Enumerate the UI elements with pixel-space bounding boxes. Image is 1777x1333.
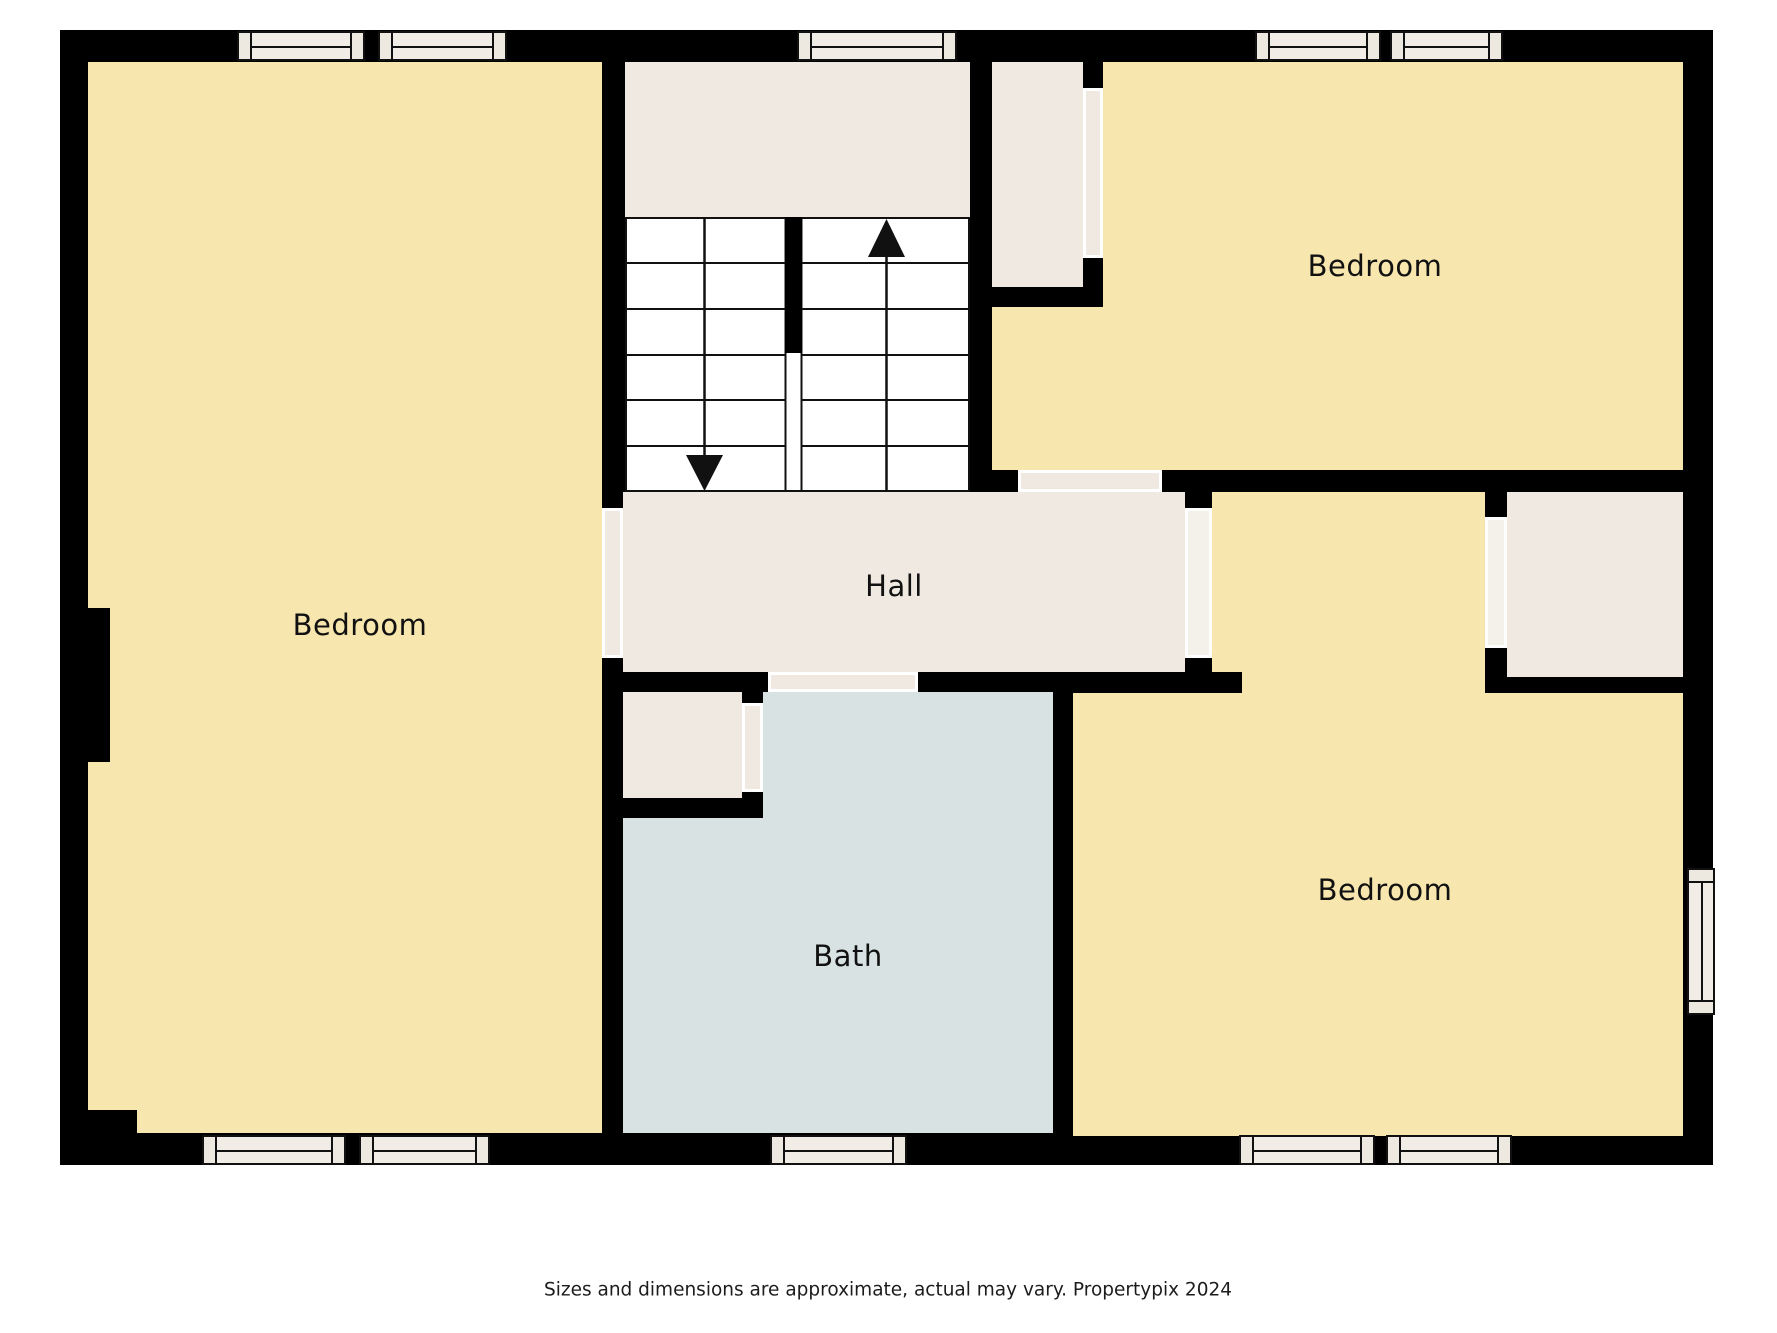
- window: [797, 31, 957, 61]
- caption: Sizes and dimensions are approximate, ac…: [544, 1280, 1232, 1301]
- window: [1687, 868, 1715, 1015]
- room-label-bath: Bath: [813, 939, 882, 973]
- window: [770, 1135, 907, 1165]
- bedroom-left-floor: [88, 62, 602, 1133]
- door-opening-closet-top: [1083, 88, 1103, 258]
- door-opening-bedroom-bottom-right: [1185, 508, 1212, 658]
- closet-top-floor: [992, 62, 1083, 287]
- floorplan-canvas: Bedroom Bedroom Bedroom Hall Bath Sizes …: [0, 0, 1777, 1333]
- room-label-bedroom-bottom-right: Bedroom: [1318, 873, 1453, 907]
- window: [1386, 1135, 1512, 1165]
- stair-landing-floor: [625, 62, 970, 217]
- bedroom-top-right-floor-ext: [992, 307, 1103, 470]
- closet-hall-floor: [623, 692, 742, 798]
- room-label-bedroom-left: Bedroom: [293, 608, 428, 642]
- door-opening-closet-right: [1485, 517, 1507, 648]
- door-opening-bath: [768, 672, 918, 692]
- door-opening-closet-hall: [742, 703, 763, 792]
- window: [378, 31, 507, 61]
- room-label-hall: Hall: [865, 569, 923, 603]
- hall-south-wall-corner: [1212, 672, 1242, 693]
- closet-hall-south-wall: [623, 798, 763, 818]
- room-label-bedroom-top-right: Bedroom: [1308, 249, 1443, 283]
- window: [359, 1135, 490, 1165]
- window: [1390, 31, 1503, 61]
- window: [1255, 31, 1381, 61]
- bedroom-bottom-right-floor: [1073, 693, 1683, 1136]
- door-opening-bedroom-left: [602, 508, 623, 658]
- door-opening-bedroom-top-right: [1018, 470, 1162, 492]
- closet-right-floor: [1507, 492, 1683, 677]
- corner-post-wall: [88, 1110, 137, 1133]
- stairs-diagram: [625, 217, 970, 492]
- window: [237, 31, 365, 61]
- window: [202, 1135, 346, 1165]
- bedroom-bottom-right-floor-upper: [1212, 492, 1485, 693]
- window: [1239, 1135, 1375, 1165]
- chimney-wall: [88, 608, 110, 762]
